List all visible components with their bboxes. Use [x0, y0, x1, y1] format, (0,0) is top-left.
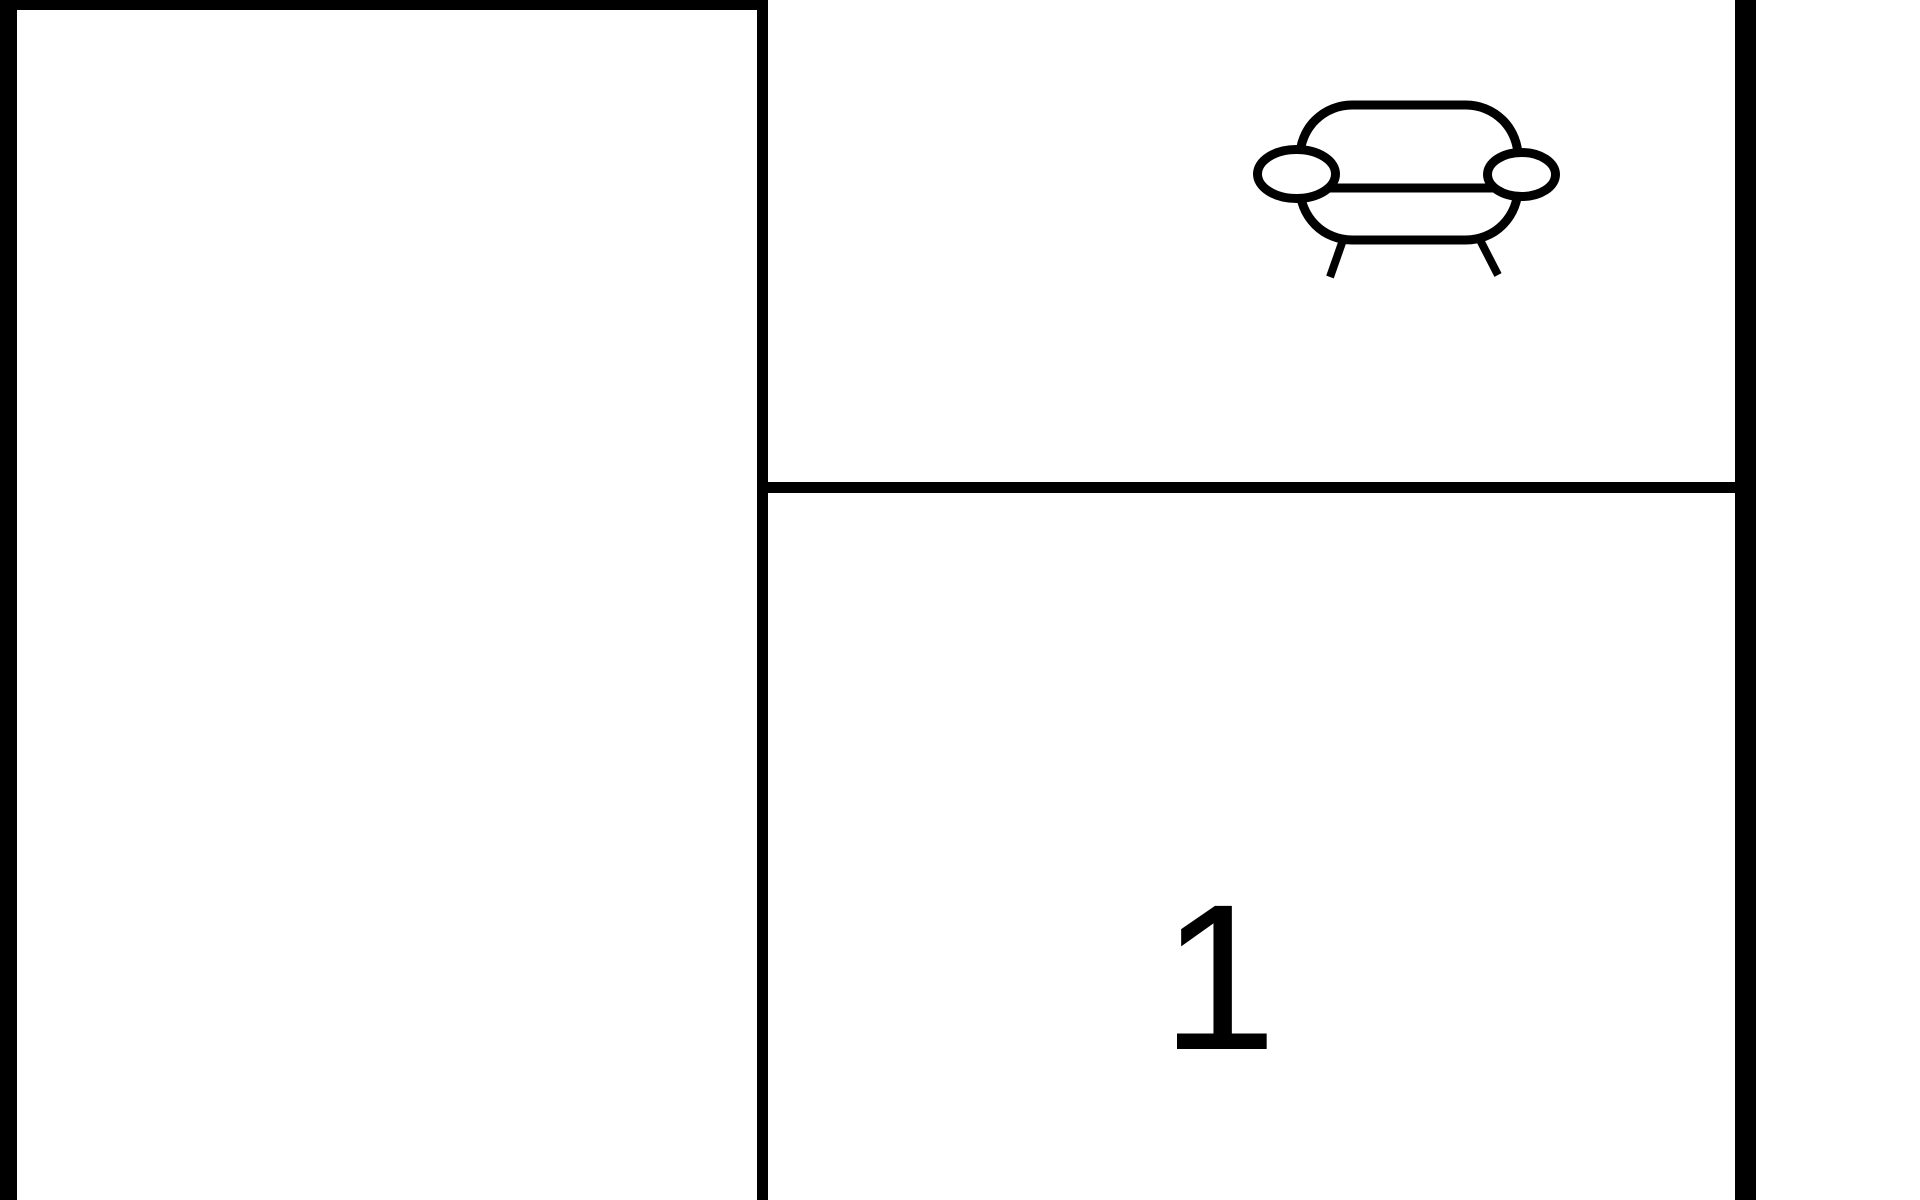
center-vertical-wall	[757, 0, 768, 1200]
room-divider-wall	[757, 482, 1745, 493]
right-wall	[1735, 0, 1756, 1200]
floor-plan: 1	[0, 0, 1920, 1200]
top-wall	[0, 0, 768, 10]
sofa-icon	[1250, 90, 1570, 290]
room-1-label: 1	[1161, 874, 1277, 1082]
left-wall	[0, 6, 17, 1200]
